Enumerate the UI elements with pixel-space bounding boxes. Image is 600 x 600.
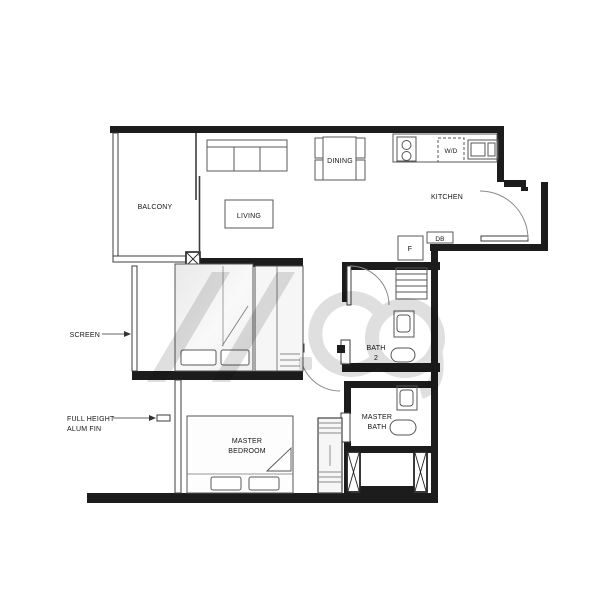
- db-label: DB: [435, 236, 444, 243]
- balcony-rail: [113, 256, 186, 262]
- wall-entry-doorstop: [521, 187, 528, 191]
- bed-2-pillow: [181, 350, 216, 365]
- master-bedroom-label-line2: BEDROOM: [228, 448, 266, 455]
- shower-2: [396, 268, 427, 299]
- master-bedroom-label-line1: MASTER: [232, 438, 262, 445]
- master-bath-fixtures: [390, 386, 417, 435]
- balcony-left-wall: [113, 133, 118, 258]
- master-bath-label-line2: BATH: [368, 424, 387, 431]
- masterbath-basin: [400, 390, 413, 406]
- wall-top: [110, 126, 504, 133]
- entry-door-swing-arc: [480, 191, 528, 239]
- alum-fin-leader-arrow: [149, 415, 156, 421]
- balcony-label: BALCONY: [138, 204, 173, 211]
- watermark-dot: [299, 357, 312, 370]
- masterbath-wc: [390, 420, 416, 435]
- shaft-column: [347, 452, 360, 492]
- screen-label: SCREEN: [70, 332, 100, 339]
- wall-entry-top: [504, 180, 526, 187]
- floor-plan-canvas: BALCONY LIVING DINING KITCHEN W/D F DB B…: [0, 0, 600, 600]
- shaft-column: [414, 452, 427, 492]
- wall-bath2-top: [342, 262, 440, 270]
- entry-door-leaf: [481, 236, 528, 241]
- dining-label: DINING: [327, 158, 353, 165]
- wall-masterbath-left-upper: [344, 381, 351, 414]
- master-bedroom-door-jamb-right: [337, 345, 345, 353]
- sofa: [207, 140, 287, 171]
- wall-ledge: [360, 486, 414, 493]
- floor-plan-drawing: BALCONY LIVING DINING KITCHEN W/D F DB B…: [0, 0, 600, 600]
- alum-fin-label-line2: ALUM FIN: [67, 426, 101, 433]
- bath2-wc: [391, 348, 415, 362]
- alum-fin-symbol: [157, 415, 170, 421]
- wall-entry-bottom: [430, 244, 548, 251]
- alum-fin-label-line1: FULL HEIGHT: [67, 416, 115, 423]
- alum-fin-wall: [175, 380, 181, 493]
- screen-partition: [132, 266, 137, 371]
- master-bed-pillow: [211, 477, 241, 490]
- master-bath-label-line1: MASTER: [362, 414, 392, 421]
- screen-leader-arrow: [124, 331, 131, 337]
- kitchen-label: KITCHEN: [431, 194, 463, 201]
- washer-dryer-label: W/D: [445, 148, 458, 155]
- master-bed-pillow: [249, 477, 279, 490]
- bath2-basin: [397, 315, 410, 332]
- wall-bottom: [87, 493, 438, 503]
- fridge-label: F: [408, 246, 412, 253]
- living-label: LIVING: [237, 213, 261, 220]
- wall-entry-right: [541, 182, 548, 251]
